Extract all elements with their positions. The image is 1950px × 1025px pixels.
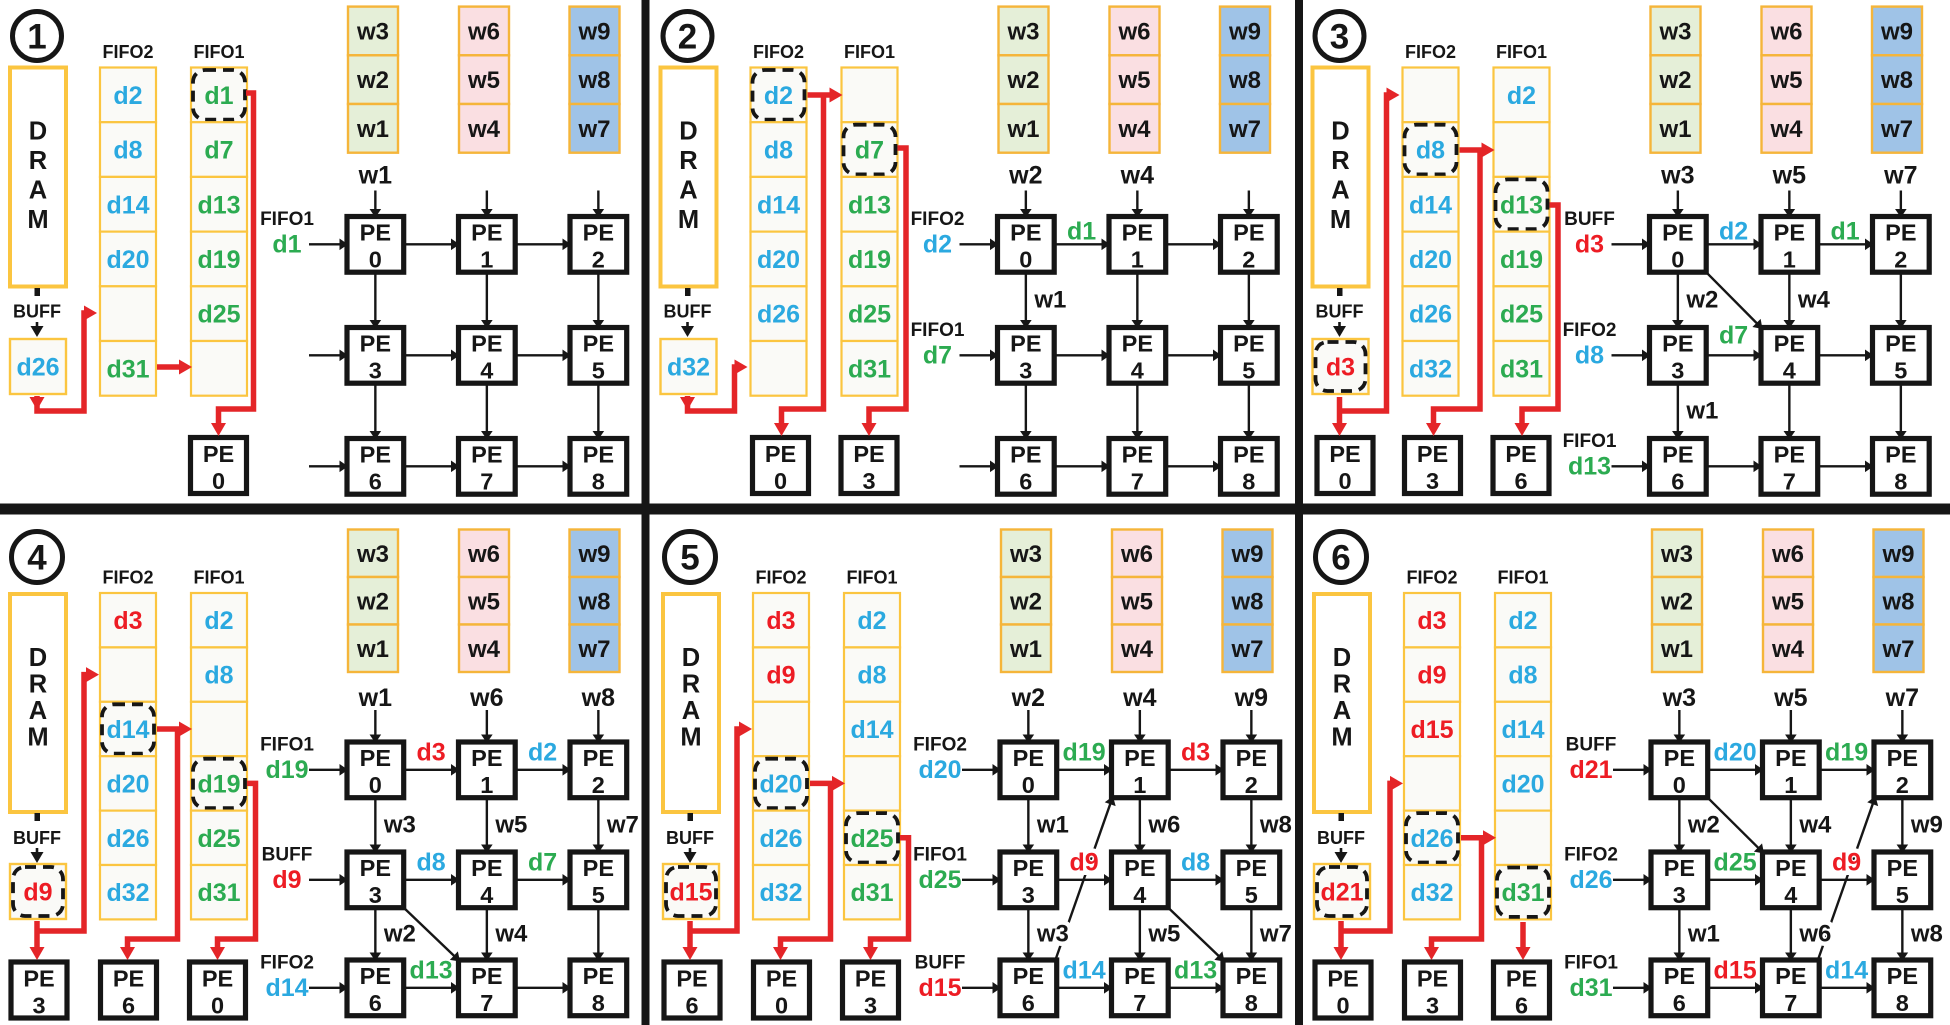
svg-text:PE: PE bbox=[1327, 966, 1358, 992]
svg-text:d3: d3 bbox=[417, 739, 446, 767]
svg-text:w5: w5 bbox=[1772, 162, 1806, 190]
svg-text:w2: w2 bbox=[1658, 67, 1691, 94]
svg-text:d15: d15 bbox=[1410, 716, 1453, 744]
svg-text:2: 2 bbox=[678, 18, 697, 57]
svg-text:PE: PE bbox=[1885, 442, 1916, 468]
svg-text:PE: PE bbox=[1775, 855, 1806, 881]
svg-text:PE: PE bbox=[1010, 331, 1041, 357]
svg-text:PE: PE bbox=[583, 442, 614, 468]
svg-text:PE: PE bbox=[1774, 220, 1805, 246]
svg-text:w5: w5 bbox=[494, 811, 527, 838]
svg-text:3: 3 bbox=[1019, 358, 1032, 384]
svg-text:D: D bbox=[29, 644, 47, 672]
svg-text:d20: d20 bbox=[106, 246, 149, 274]
svg-text:d26: d26 bbox=[759, 825, 802, 853]
svg-text:PE: PE bbox=[202, 966, 233, 992]
svg-text:w7: w7 bbox=[1883, 162, 1917, 190]
svg-text:6: 6 bbox=[1673, 990, 1686, 1016]
svg-text:FIFO2: FIFO2 bbox=[911, 209, 965, 230]
svg-text:w1: w1 bbox=[1006, 116, 1039, 143]
svg-text:6: 6 bbox=[685, 993, 698, 1019]
svg-text:8: 8 bbox=[592, 469, 605, 495]
svg-text:w3: w3 bbox=[1662, 684, 1696, 712]
svg-text:w8: w8 bbox=[581, 684, 615, 712]
svg-text:d20: d20 bbox=[759, 770, 802, 798]
svg-text:d2: d2 bbox=[857, 607, 886, 635]
svg-text:w2: w2 bbox=[383, 920, 416, 947]
svg-text:w5: w5 bbox=[1117, 67, 1150, 94]
svg-text:d2: d2 bbox=[1719, 218, 1748, 246]
svg-text:d14: d14 bbox=[265, 974, 308, 1002]
svg-text:PE: PE bbox=[1887, 963, 1918, 989]
svg-text:M: M bbox=[27, 206, 48, 234]
svg-text:w9: w9 bbox=[1230, 541, 1263, 568]
svg-text:d31: d31 bbox=[197, 879, 240, 907]
svg-text:0: 0 bbox=[1338, 468, 1351, 494]
svg-text:w6: w6 bbox=[1798, 920, 1831, 947]
svg-text:A: A bbox=[682, 697, 700, 725]
svg-text:w5: w5 bbox=[467, 588, 500, 615]
svg-text:w7: w7 bbox=[1259, 920, 1292, 947]
svg-text:1: 1 bbox=[1131, 247, 1144, 273]
svg-text:d1: d1 bbox=[1831, 218, 1860, 246]
svg-text:w3: w3 bbox=[356, 18, 389, 45]
svg-text:PE: PE bbox=[471, 331, 502, 357]
svg-text:PE: PE bbox=[471, 220, 502, 246]
svg-text:d15: d15 bbox=[669, 879, 712, 907]
svg-text:PE: PE bbox=[1124, 855, 1155, 881]
svg-text:w6: w6 bbox=[1120, 541, 1153, 568]
svg-text:d2: d2 bbox=[528, 739, 557, 767]
svg-text:2: 2 bbox=[1242, 247, 1255, 273]
svg-text:PE: PE bbox=[583, 220, 614, 246]
svg-text:BUFF: BUFF bbox=[13, 302, 61, 322]
svg-text:D: D bbox=[679, 118, 697, 146]
svg-text:PE: PE bbox=[1662, 442, 1693, 468]
svg-text:w4: w4 bbox=[1120, 636, 1154, 663]
svg-text:PE: PE bbox=[1122, 220, 1153, 246]
svg-text:4: 4 bbox=[1783, 358, 1796, 384]
svg-text:d25: d25 bbox=[197, 301, 240, 329]
svg-text:6: 6 bbox=[122, 993, 135, 1019]
svg-text:PE: PE bbox=[1124, 963, 1155, 989]
svg-text:FIFO2: FIFO2 bbox=[102, 42, 153, 62]
svg-text:4: 4 bbox=[480, 358, 493, 384]
svg-text:FIFO2: FIFO2 bbox=[1405, 42, 1456, 62]
svg-text:PE: PE bbox=[1885, 331, 1916, 357]
svg-text:d8: d8 bbox=[1181, 849, 1210, 877]
svg-text:7: 7 bbox=[1783, 469, 1796, 495]
svg-text:BUFF: BUFF bbox=[1564, 209, 1615, 230]
svg-text:0: 0 bbox=[1673, 772, 1686, 798]
svg-text:d8: d8 bbox=[1508, 662, 1537, 690]
svg-text:d26: d26 bbox=[16, 354, 59, 382]
svg-text:w1: w1 bbox=[1036, 811, 1069, 838]
svg-text:d19: d19 bbox=[197, 246, 240, 274]
svg-text:0: 0 bbox=[774, 468, 787, 494]
svg-text:PE: PE bbox=[471, 442, 502, 468]
svg-text:d20: d20 bbox=[1714, 739, 1757, 767]
svg-text:PE: PE bbox=[765, 441, 796, 467]
svg-text:3: 3 bbox=[1330, 18, 1349, 57]
svg-text:BUFF: BUFF bbox=[1566, 734, 1617, 755]
svg-text:2: 2 bbox=[592, 247, 605, 273]
svg-text:6: 6 bbox=[1022, 990, 1035, 1016]
svg-text:w2: w2 bbox=[1660, 588, 1693, 615]
svg-text:w6: w6 bbox=[467, 541, 500, 568]
svg-text:3: 3 bbox=[1671, 358, 1684, 384]
svg-text:8: 8 bbox=[1245, 990, 1258, 1016]
svg-text:PE: PE bbox=[23, 966, 54, 992]
svg-text:FIFO1: FIFO1 bbox=[1564, 952, 1618, 973]
svg-text:w1: w1 bbox=[1660, 636, 1693, 663]
svg-text:FIFO2: FIFO2 bbox=[1406, 568, 1457, 588]
svg-text:2: 2 bbox=[1245, 772, 1258, 798]
svg-text:d19: d19 bbox=[848, 246, 891, 274]
svg-text:4: 4 bbox=[1784, 882, 1797, 908]
svg-text:2: 2 bbox=[1896, 772, 1909, 798]
svg-text:3: 3 bbox=[1426, 993, 1439, 1019]
svg-text:PE: PE bbox=[360, 220, 391, 246]
svg-text:D: D bbox=[1333, 644, 1351, 672]
svg-text:FIFO1: FIFO1 bbox=[1496, 42, 1547, 62]
svg-text:R: R bbox=[1331, 147, 1349, 175]
svg-text:PE: PE bbox=[1233, 442, 1264, 468]
svg-text:d32: d32 bbox=[759, 879, 802, 907]
svg-text:w1: w1 bbox=[356, 636, 389, 663]
svg-text:PE: PE bbox=[1664, 745, 1695, 771]
svg-text:0: 0 bbox=[369, 247, 382, 273]
svg-text:w6: w6 bbox=[469, 684, 503, 712]
svg-text:d3: d3 bbox=[766, 607, 795, 635]
svg-text:d15: d15 bbox=[1714, 957, 1757, 985]
svg-text:1: 1 bbox=[1783, 247, 1796, 273]
svg-text:A: A bbox=[1331, 177, 1349, 205]
svg-text:PE: PE bbox=[1887, 855, 1918, 881]
svg-text:A: A bbox=[1333, 697, 1351, 725]
svg-text:PE: PE bbox=[583, 963, 614, 989]
svg-text:d2: d2 bbox=[204, 607, 233, 635]
svg-text:4: 4 bbox=[1131, 358, 1144, 384]
svg-text:w9: w9 bbox=[1228, 18, 1261, 45]
svg-text:6: 6 bbox=[1515, 993, 1528, 1019]
svg-text:PE: PE bbox=[1775, 963, 1806, 989]
svg-text:d14: d14 bbox=[106, 716, 149, 744]
svg-text:8: 8 bbox=[1894, 469, 1907, 495]
svg-text:d2: d2 bbox=[113, 82, 142, 110]
svg-text:d15: d15 bbox=[918, 974, 961, 1002]
svg-text:d13: d13 bbox=[1500, 191, 1543, 219]
svg-text:PE: PE bbox=[1664, 963, 1695, 989]
svg-text:M: M bbox=[680, 724, 701, 752]
svg-text:M: M bbox=[678, 206, 699, 234]
svg-text:FIFO1: FIFO1 bbox=[260, 734, 314, 755]
svg-text:w1: w1 bbox=[358, 162, 392, 190]
svg-text:w6: w6 bbox=[1117, 18, 1150, 45]
svg-text:1: 1 bbox=[27, 18, 46, 57]
svg-text:1: 1 bbox=[480, 772, 493, 798]
svg-text:d2: d2 bbox=[1508, 607, 1537, 635]
svg-text:6: 6 bbox=[1331, 539, 1350, 578]
svg-text:1: 1 bbox=[1133, 772, 1146, 798]
svg-text:D: D bbox=[682, 644, 700, 672]
svg-text:d20: d20 bbox=[1501, 770, 1544, 798]
svg-text:w1: w1 bbox=[1033, 286, 1066, 313]
svg-text:PE: PE bbox=[1662, 220, 1693, 246]
svg-text:d3: d3 bbox=[1326, 354, 1355, 382]
svg-text:w8: w8 bbox=[577, 67, 610, 94]
svg-text:PE: PE bbox=[1887, 745, 1918, 771]
svg-text:d8: d8 bbox=[417, 849, 446, 877]
svg-text:w2: w2 bbox=[1006, 67, 1039, 94]
svg-text:PE: PE bbox=[1885, 220, 1916, 246]
svg-text:PE: PE bbox=[853, 441, 884, 467]
svg-text:d14: d14 bbox=[106, 191, 149, 219]
svg-text:1: 1 bbox=[1784, 772, 1797, 798]
svg-text:d13: d13 bbox=[197, 191, 240, 219]
svg-text:FIFO2: FIFO2 bbox=[1564, 844, 1618, 865]
svg-text:d32: d32 bbox=[1410, 879, 1453, 907]
svg-text:d7: d7 bbox=[855, 137, 884, 165]
svg-text:M: M bbox=[27, 724, 48, 752]
svg-text:PE: PE bbox=[1774, 331, 1805, 357]
svg-text:PE: PE bbox=[203, 441, 234, 467]
svg-text:PE: PE bbox=[676, 966, 707, 992]
svg-text:w1: w1 bbox=[1009, 636, 1042, 663]
svg-text:3: 3 bbox=[1022, 882, 1035, 908]
svg-text:PE: PE bbox=[1775, 745, 1806, 771]
svg-text:d31: d31 bbox=[850, 879, 893, 907]
svg-text:PE: PE bbox=[1505, 441, 1536, 467]
svg-text:d9: d9 bbox=[23, 879, 52, 907]
svg-text:d13: d13 bbox=[1174, 957, 1217, 985]
svg-text:w4: w4 bbox=[494, 920, 528, 947]
svg-text:BUFF: BUFF bbox=[262, 844, 313, 865]
svg-text:M: M bbox=[1330, 206, 1351, 234]
svg-text:FIFO1: FIFO1 bbox=[1563, 431, 1617, 452]
svg-text:w8: w8 bbox=[1881, 588, 1914, 615]
svg-text:d1: d1 bbox=[1067, 218, 1096, 246]
svg-text:w8: w8 bbox=[1230, 588, 1263, 615]
svg-text:d3: d3 bbox=[1417, 607, 1446, 635]
svg-text:7: 7 bbox=[1131, 469, 1144, 495]
svg-text:7: 7 bbox=[1133, 990, 1146, 1016]
svg-text:d19: d19 bbox=[1825, 739, 1868, 767]
svg-text:FIFO2: FIFO2 bbox=[913, 734, 967, 755]
svg-text:3: 3 bbox=[1426, 468, 1439, 494]
svg-text:6: 6 bbox=[369, 469, 382, 495]
svg-text:d32: d32 bbox=[667, 354, 710, 382]
svg-text:w7: w7 bbox=[577, 636, 610, 663]
svg-text:d9: d9 bbox=[1832, 849, 1861, 877]
svg-text:w5: w5 bbox=[1769, 67, 1802, 94]
svg-text:w3: w3 bbox=[1006, 18, 1039, 45]
svg-text:w5: w5 bbox=[467, 67, 500, 94]
svg-text:R: R bbox=[682, 671, 700, 699]
svg-text:3: 3 bbox=[864, 993, 877, 1019]
svg-text:4: 4 bbox=[1133, 882, 1146, 908]
svg-text:D: D bbox=[29, 118, 47, 146]
svg-text:d21: d21 bbox=[1320, 879, 1363, 907]
svg-text:d20: d20 bbox=[918, 756, 961, 784]
svg-text:w7: w7 bbox=[1880, 116, 1913, 143]
svg-text:w6: w6 bbox=[1771, 541, 1804, 568]
svg-text:d25: d25 bbox=[1500, 301, 1543, 329]
svg-text:w2: w2 bbox=[1009, 588, 1042, 615]
svg-text:BUFF: BUFF bbox=[664, 302, 712, 322]
svg-text:d25: d25 bbox=[197, 825, 240, 853]
svg-text:w9: w9 bbox=[1910, 811, 1943, 838]
svg-text:FIFO1: FIFO1 bbox=[913, 844, 967, 865]
svg-text:PE: PE bbox=[360, 442, 391, 468]
svg-text:BUFF: BUFF bbox=[1316, 302, 1364, 322]
svg-text:PE: PE bbox=[583, 855, 614, 881]
svg-text:PE: PE bbox=[1506, 966, 1537, 992]
svg-text:d14: d14 bbox=[1825, 957, 1868, 985]
svg-text:d26: d26 bbox=[757, 301, 800, 329]
svg-text:FIFO2: FIFO2 bbox=[102, 568, 153, 588]
svg-text:R: R bbox=[29, 147, 47, 175]
svg-text:6: 6 bbox=[1514, 468, 1527, 494]
svg-text:8: 8 bbox=[1896, 990, 1909, 1016]
svg-text:d9: d9 bbox=[272, 866, 301, 894]
svg-text:w2: w2 bbox=[356, 67, 389, 94]
svg-text:A: A bbox=[679, 177, 697, 205]
svg-text:d14: d14 bbox=[757, 191, 800, 219]
svg-text:PE: PE bbox=[1236, 963, 1267, 989]
svg-text:0: 0 bbox=[1336, 993, 1349, 1019]
svg-text:d31: d31 bbox=[1500, 355, 1543, 383]
svg-text:1: 1 bbox=[480, 247, 493, 273]
svg-text:PE: PE bbox=[471, 855, 502, 881]
svg-text:5: 5 bbox=[1896, 882, 1909, 908]
svg-text:A: A bbox=[29, 697, 47, 725]
svg-text:PE: PE bbox=[471, 963, 502, 989]
svg-text:w3: w3 bbox=[1009, 541, 1042, 568]
svg-text:d14: d14 bbox=[1063, 957, 1106, 985]
svg-text:d32: d32 bbox=[1409, 355, 1452, 383]
svg-text:PE: PE bbox=[583, 745, 614, 771]
svg-text:PE: PE bbox=[855, 966, 886, 992]
svg-text:8: 8 bbox=[1242, 469, 1255, 495]
svg-text:PE: PE bbox=[1122, 442, 1153, 468]
svg-text:5: 5 bbox=[592, 882, 605, 908]
svg-text:d26: d26 bbox=[106, 825, 149, 853]
svg-text:d7: d7 bbox=[923, 341, 952, 369]
svg-text:w5: w5 bbox=[1120, 588, 1153, 615]
svg-text:w8: w8 bbox=[1880, 67, 1913, 94]
svg-text:6: 6 bbox=[1019, 469, 1032, 495]
svg-text:w3: w3 bbox=[1658, 18, 1691, 45]
svg-text:w8: w8 bbox=[577, 588, 610, 615]
svg-text:d31: d31 bbox=[106, 355, 149, 383]
svg-text:d9: d9 bbox=[1417, 662, 1446, 690]
svg-text:d8: d8 bbox=[857, 662, 886, 690]
svg-text:w6: w6 bbox=[1147, 811, 1180, 838]
svg-text:w2: w2 bbox=[1011, 684, 1045, 712]
svg-text:0: 0 bbox=[1671, 247, 1684, 273]
svg-text:w8: w8 bbox=[1228, 67, 1261, 94]
svg-text:PE: PE bbox=[1013, 963, 1044, 989]
svg-text:3: 3 bbox=[862, 468, 875, 494]
svg-text:FIFO2: FIFO2 bbox=[1563, 320, 1617, 341]
svg-text:d14: d14 bbox=[1409, 191, 1452, 219]
svg-text:PE: PE bbox=[113, 966, 144, 992]
svg-text:w9: w9 bbox=[577, 541, 610, 568]
svg-text:FIFO1: FIFO1 bbox=[844, 42, 895, 62]
svg-text:7: 7 bbox=[480, 990, 493, 1016]
svg-text:FIFO1: FIFO1 bbox=[1497, 568, 1548, 588]
svg-text:d9: d9 bbox=[1070, 849, 1099, 877]
svg-text:w5: w5 bbox=[1771, 588, 1804, 615]
svg-text:d3: d3 bbox=[1181, 739, 1210, 767]
svg-text:w4: w4 bbox=[467, 116, 501, 143]
svg-text:d25: d25 bbox=[848, 301, 891, 329]
svg-text:d8: d8 bbox=[1575, 341, 1604, 369]
svg-text:w7: w7 bbox=[1228, 116, 1261, 143]
svg-text:PE: PE bbox=[1417, 441, 1448, 467]
svg-text:w8: w8 bbox=[1259, 811, 1292, 838]
svg-text:6: 6 bbox=[1671, 469, 1684, 495]
svg-text:2: 2 bbox=[592, 772, 605, 798]
svg-text:0: 0 bbox=[775, 993, 788, 1019]
svg-text:d20: d20 bbox=[106, 770, 149, 798]
svg-text:d13: d13 bbox=[848, 191, 891, 219]
svg-text:w1: w1 bbox=[1658, 116, 1691, 143]
svg-text:0: 0 bbox=[1022, 772, 1035, 798]
svg-text:w5: w5 bbox=[1773, 684, 1807, 712]
svg-text:3: 3 bbox=[1673, 882, 1686, 908]
svg-text:PE: PE bbox=[360, 963, 391, 989]
svg-text:w1: w1 bbox=[358, 684, 392, 712]
svg-text:BUFF: BUFF bbox=[666, 828, 714, 848]
svg-text:w3: w3 bbox=[1660, 541, 1693, 568]
svg-text:PE: PE bbox=[1662, 331, 1693, 357]
svg-text:d2: d2 bbox=[923, 230, 952, 258]
svg-text:FIFO1: FIFO1 bbox=[911, 320, 965, 341]
svg-text:d25: d25 bbox=[850, 825, 893, 853]
svg-text:d20: d20 bbox=[757, 246, 800, 274]
svg-text:w3: w3 bbox=[383, 811, 416, 838]
svg-text:d7: d7 bbox=[528, 849, 557, 877]
svg-text:w4: w4 bbox=[1771, 636, 1805, 663]
svg-text:0: 0 bbox=[369, 772, 382, 798]
svg-text:PE: PE bbox=[360, 855, 391, 881]
svg-text:w4: w4 bbox=[1797, 286, 1831, 313]
svg-text:d25: d25 bbox=[918, 866, 961, 894]
svg-text:R: R bbox=[29, 671, 47, 699]
svg-text:PE: PE bbox=[471, 745, 502, 771]
svg-text:BUFF: BUFF bbox=[1317, 828, 1365, 848]
svg-text:d7: d7 bbox=[204, 137, 233, 165]
svg-text:7: 7 bbox=[480, 469, 493, 495]
svg-text:d8: d8 bbox=[204, 662, 233, 690]
svg-text:d20: d20 bbox=[1409, 246, 1452, 274]
svg-text:A: A bbox=[29, 177, 47, 205]
svg-text:w8: w8 bbox=[1910, 920, 1943, 947]
svg-text:d21: d21 bbox=[1569, 756, 1612, 784]
svg-text:d8: d8 bbox=[113, 137, 142, 165]
svg-text:w6: w6 bbox=[1769, 18, 1802, 45]
svg-text:w7: w7 bbox=[1881, 636, 1914, 663]
svg-text:d2: d2 bbox=[764, 82, 793, 110]
svg-text:w2: w2 bbox=[1687, 811, 1720, 838]
svg-text:w4: w4 bbox=[1117, 116, 1151, 143]
svg-text:FIFO1: FIFO1 bbox=[193, 42, 244, 62]
svg-text:w3: w3 bbox=[1660, 162, 1694, 190]
svg-text:w1: w1 bbox=[1685, 397, 1718, 424]
svg-text:d9: d9 bbox=[766, 662, 795, 690]
